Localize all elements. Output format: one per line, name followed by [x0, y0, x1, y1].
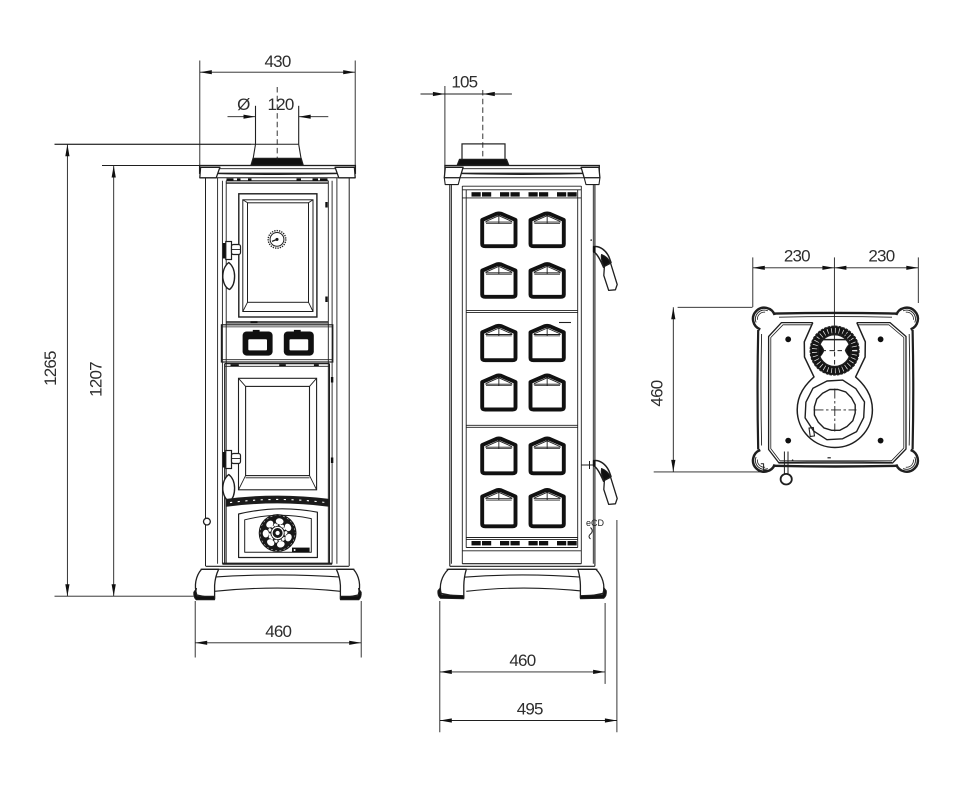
svg-text:120: 120: [268, 95, 294, 114]
svg-text:460: 460: [509, 651, 535, 670]
svg-text:460: 460: [648, 380, 667, 406]
svg-text:495: 495: [517, 700, 543, 719]
svg-text:eCD: eCD: [586, 518, 605, 528]
svg-text:105: 105: [451, 73, 477, 92]
svg-text:230: 230: [868, 247, 894, 266]
svg-text:460: 460: [265, 622, 291, 641]
svg-text:430: 430: [265, 52, 291, 71]
svg-text:230: 230: [784, 247, 810, 266]
svg-text:Ø: Ø: [237, 95, 250, 114]
svg-text:1207: 1207: [86, 362, 105, 397]
svg-text:1265: 1265: [41, 351, 60, 386]
